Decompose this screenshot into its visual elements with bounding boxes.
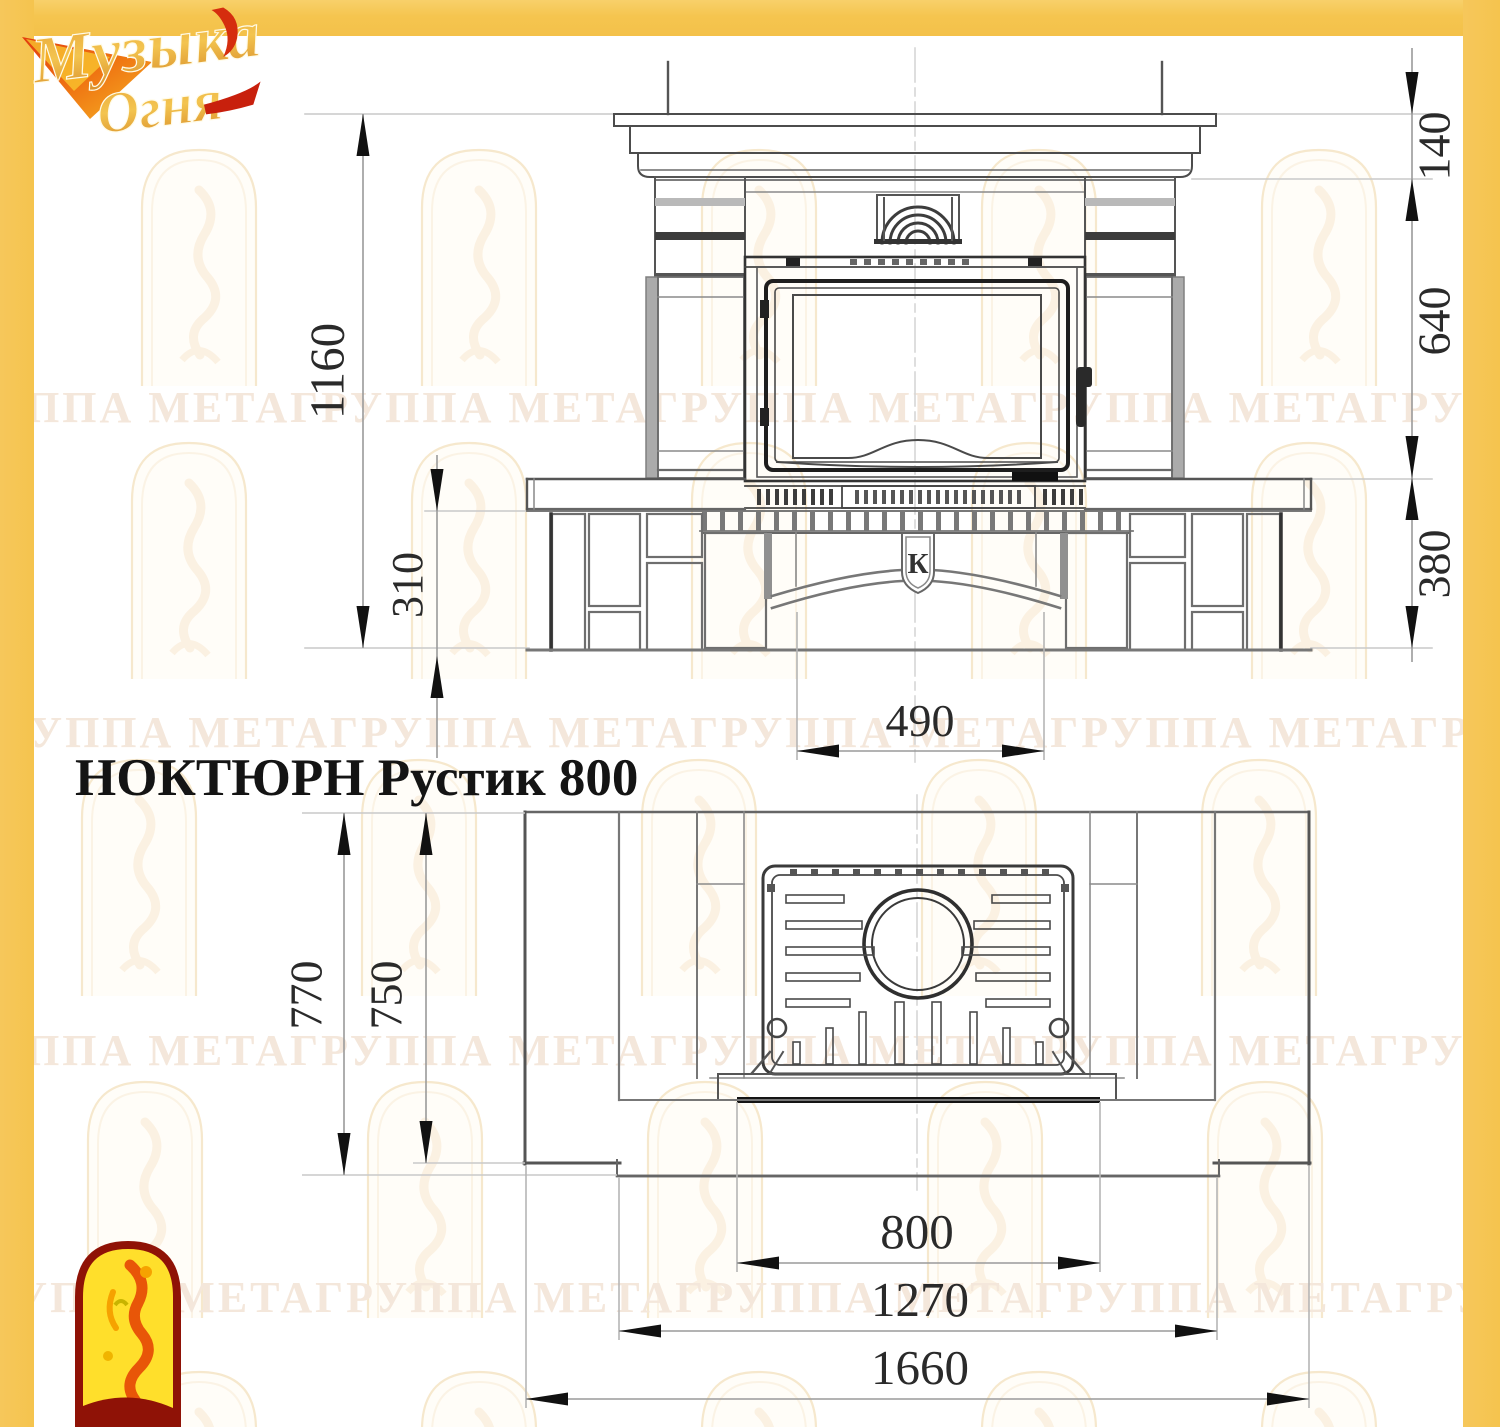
svg-text:380: 380 <box>1409 530 1460 599</box>
svg-text:770: 770 <box>281 961 332 1030</box>
svg-text:ГРУППА МЕТАГРУППА МЕТАГРУППА М: ГРУППА МЕТАГРУППА МЕТАГРУППА МЕТАГРУППА … <box>0 1273 1500 1322</box>
svg-text:490: 490 <box>886 695 955 746</box>
svg-text:1160: 1160 <box>299 323 354 419</box>
svg-text:800: 800 <box>880 1204 954 1259</box>
svg-text:НОКТЮРН Рустик 800: НОКТЮРН Рустик 800 <box>75 749 638 807</box>
svg-text:ГРУППА МЕТАГРУППА МЕТАГРУППА М: ГРУППА МЕТАГРУППА МЕТАГРУППА МЕТАГРУППА … <box>0 383 1500 432</box>
svg-text:750: 750 <box>361 961 412 1030</box>
svg-text:640: 640 <box>1409 287 1460 356</box>
svg-text:1270: 1270 <box>871 1272 969 1327</box>
svg-text:К: К <box>907 548 928 580</box>
svg-text:ГРУППА МЕТАГРУППА МЕТАГРУППА М: ГРУППА МЕТАГРУППА МЕТАГРУППА МЕТАГРУППА … <box>0 1026 1500 1075</box>
svg-text:140: 140 <box>1409 112 1460 181</box>
svg-text:1660: 1660 <box>871 1340 969 1395</box>
svg-text:310: 310 <box>383 552 432 618</box>
